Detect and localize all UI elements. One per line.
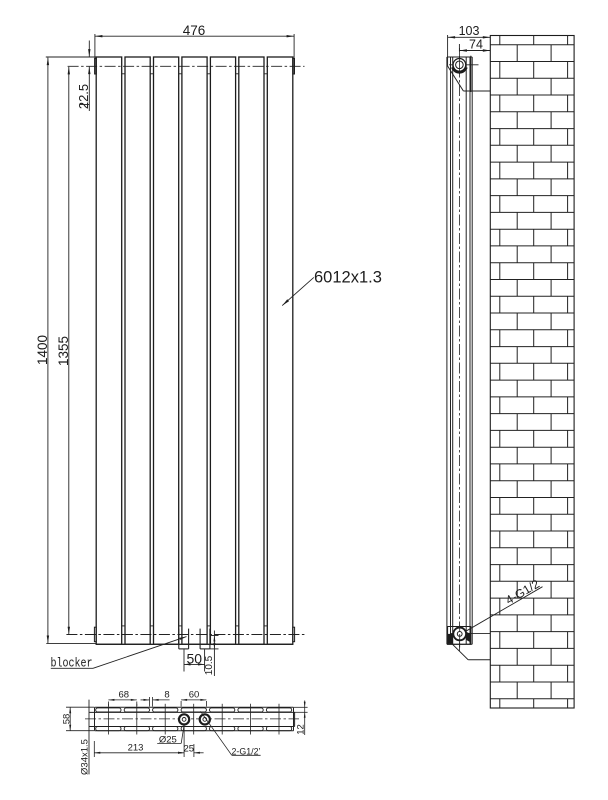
svg-text:6012x1.3: 6012x1.3 xyxy=(314,268,382,286)
svg-text:10.5: 10.5 xyxy=(204,655,215,675)
svg-text:68: 68 xyxy=(119,689,130,700)
svg-text:8: 8 xyxy=(164,689,169,700)
svg-text:25: 25 xyxy=(184,743,195,754)
svg-text:1355: 1355 xyxy=(56,336,71,366)
svg-text:60: 60 xyxy=(189,689,200,700)
svg-text:50: 50 xyxy=(187,651,203,667)
svg-text:1400: 1400 xyxy=(35,335,50,365)
svg-text:476: 476 xyxy=(183,23,206,38)
svg-text:74: 74 xyxy=(469,38,483,52)
svg-text:12: 12 xyxy=(295,724,306,735)
svg-text:58: 58 xyxy=(61,714,72,725)
svg-text:22.5: 22.5 xyxy=(76,84,91,109)
svg-text:213: 213 xyxy=(128,742,144,753)
svg-text:103: 103 xyxy=(459,24,480,38)
svg-text:Ø34x1.5: Ø34x1.5 xyxy=(79,739,90,775)
